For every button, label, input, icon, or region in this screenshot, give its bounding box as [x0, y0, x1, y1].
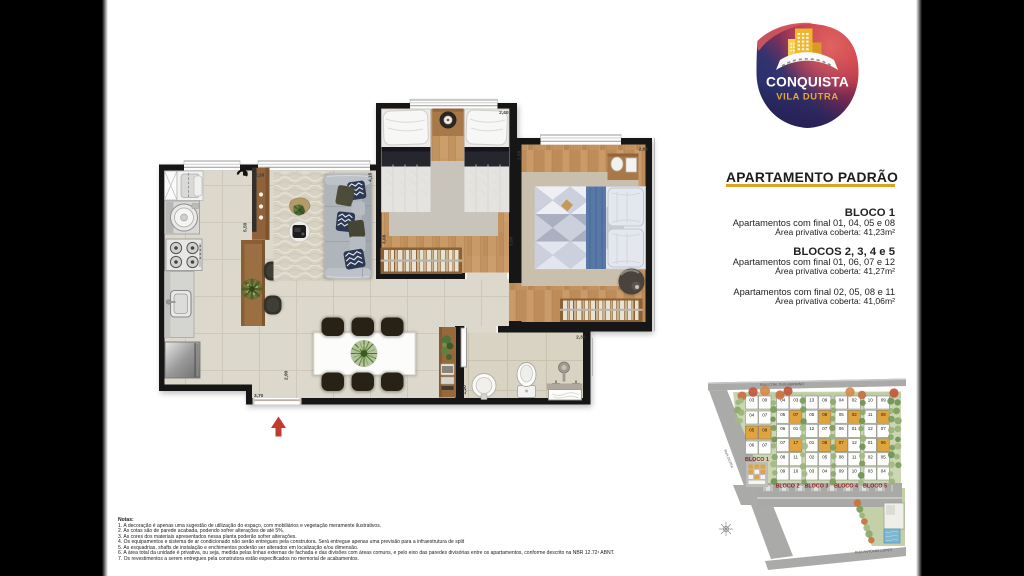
svg-text:06: 06: [749, 443, 755, 448]
svg-text:02: 02: [852, 398, 858, 403]
svg-text:RUA COM. GUILHERMINO: RUA COM. GUILHERMINO: [760, 382, 804, 387]
svg-text:10: 10: [852, 469, 858, 474]
svg-text:05: 05: [822, 454, 828, 459]
svg-text:07: 07: [793, 412, 799, 417]
svg-text:CONQUISTA: CONQUISTA: [766, 75, 849, 90]
svg-text:07: 07: [881, 426, 887, 431]
svg-text:10: 10: [793, 469, 799, 474]
svg-text:11: 11: [793, 454, 798, 459]
svg-text:01: 01: [868, 440, 874, 445]
svg-text:08: 08: [822, 412, 828, 417]
svg-text:05: 05: [780, 412, 786, 417]
svg-text:09: 09: [881, 398, 887, 403]
svg-text:17: 17: [793, 440, 799, 445]
svg-text:13: 13: [809, 398, 815, 403]
svg-text:02: 02: [852, 412, 858, 417]
svg-text:2,60: 2,60: [639, 147, 649, 153]
svg-text:02: 02: [868, 454, 874, 459]
svg-text:05: 05: [839, 412, 845, 417]
svg-text:11: 11: [868, 412, 873, 417]
svg-text:10: 10: [868, 398, 874, 403]
svg-text:05: 05: [881, 454, 887, 459]
svg-text:BLOCO 3: BLOCO 3: [805, 484, 829, 490]
svg-text:BLOCO 1: BLOCO 1: [745, 457, 769, 463]
svg-text:03: 03: [793, 398, 799, 403]
svg-text:11: 11: [852, 454, 857, 459]
svg-text:06: 06: [780, 426, 786, 431]
svg-text:01: 01: [793, 426, 799, 431]
svg-text:07: 07: [762, 443, 768, 448]
svg-text:08: 08: [822, 440, 828, 445]
svg-text:05: 05: [749, 428, 755, 433]
svg-text:08: 08: [780, 454, 786, 459]
svg-text:2,40: 2,40: [499, 110, 509, 116]
svg-text:07: 07: [762, 413, 768, 418]
svg-text:1,50: 1,50: [517, 150, 523, 160]
svg-text:12: 12: [868, 426, 874, 431]
svg-text:BLOCO 2: BLOCO 2: [776, 484, 800, 490]
svg-text:1,20: 1,20: [462, 385, 468, 395]
svg-text:01: 01: [852, 426, 858, 431]
svg-text:02: 02: [809, 454, 815, 459]
svg-text:00: 00: [762, 398, 768, 403]
svg-text:03: 03: [749, 398, 755, 403]
svg-text:BLOCO 5: BLOCO 5: [863, 484, 887, 490]
svg-text:01: 01: [809, 440, 815, 445]
svg-text:07: 07: [780, 440, 786, 445]
svg-text:08: 08: [881, 412, 887, 417]
svg-text:05: 05: [809, 412, 815, 417]
svg-text:3,00: 3,00: [509, 236, 515, 246]
svg-text:4,15: 4,15: [368, 172, 374, 182]
svg-text:04: 04: [881, 469, 887, 474]
svg-text:2,30: 2,30: [576, 335, 586, 341]
svg-text:07: 07: [839, 440, 845, 445]
svg-text:08: 08: [839, 454, 845, 459]
svg-text:3,70: 3,70: [254, 393, 264, 399]
svg-text:06: 06: [839, 426, 845, 431]
svg-text:04: 04: [839, 398, 845, 403]
svg-text:04: 04: [822, 469, 828, 474]
svg-text:09: 09: [780, 469, 786, 474]
svg-text:09: 09: [839, 469, 845, 474]
svg-text:03: 03: [868, 469, 874, 474]
svg-text:06: 06: [881, 440, 887, 445]
svg-text:VILA DUTRA: VILA DUTRA: [776, 91, 838, 102]
svg-text:04: 04: [749, 413, 755, 418]
svg-text:12: 12: [809, 426, 815, 431]
svg-text:BLOCO 4: BLOCO 4: [834, 484, 858, 490]
svg-text:09: 09: [822, 398, 828, 403]
svg-text:5,50: 5,50: [243, 222, 249, 232]
svg-text:12: 12: [852, 440, 858, 445]
svg-text:07: 07: [822, 426, 828, 431]
svg-text:2,90: 2,90: [284, 370, 290, 380]
svg-text:2,26: 2,26: [255, 173, 265, 179]
svg-text:03: 03: [809, 469, 815, 474]
svg-text:08: 08: [762, 428, 768, 433]
svg-text:3,08: 3,08: [382, 234, 388, 244]
